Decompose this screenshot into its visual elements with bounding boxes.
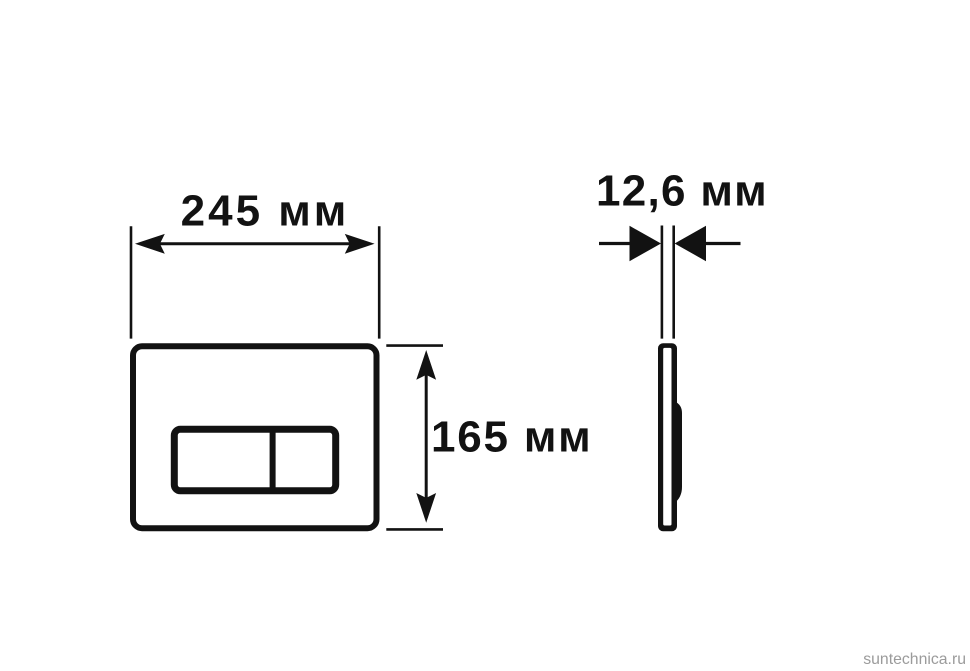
svg-text:165 мм: 165 мм xyxy=(431,412,593,461)
svg-text:suntechnica.ru: suntechnica.ru xyxy=(863,651,966,668)
svg-text:245 мм: 245 мм xyxy=(181,187,350,236)
svg-text:12,6 мм: 12,6 мм xyxy=(596,166,768,215)
